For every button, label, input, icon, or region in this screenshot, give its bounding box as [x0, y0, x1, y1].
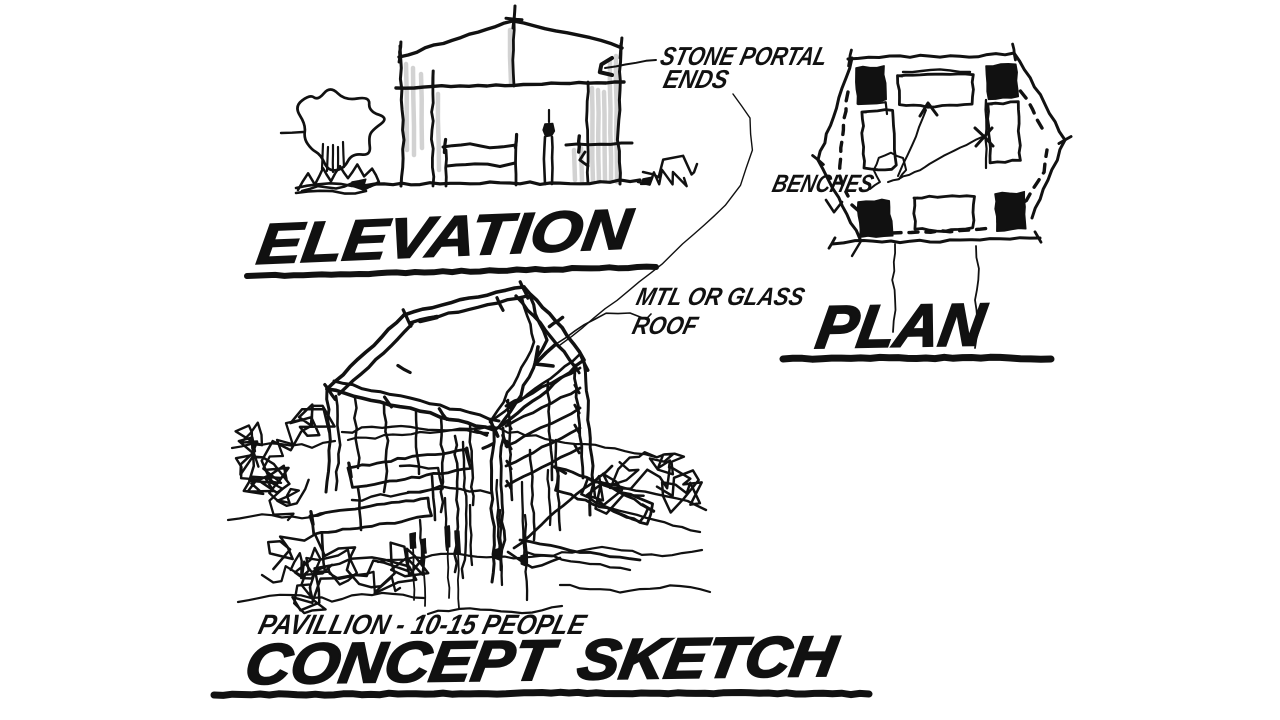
svg-text:ENDS: ENDS — [661, 64, 733, 94]
svg-text:BENCHES: BENCHES — [770, 170, 877, 198]
svg-text:CONCEPT SKETCH: CONCEPT SKETCH — [241, 625, 843, 697]
svg-text:MTL OR GLASS: MTL OR GLASS — [634, 283, 808, 311]
svg-text:PLAN: PLAN — [812, 290, 991, 361]
